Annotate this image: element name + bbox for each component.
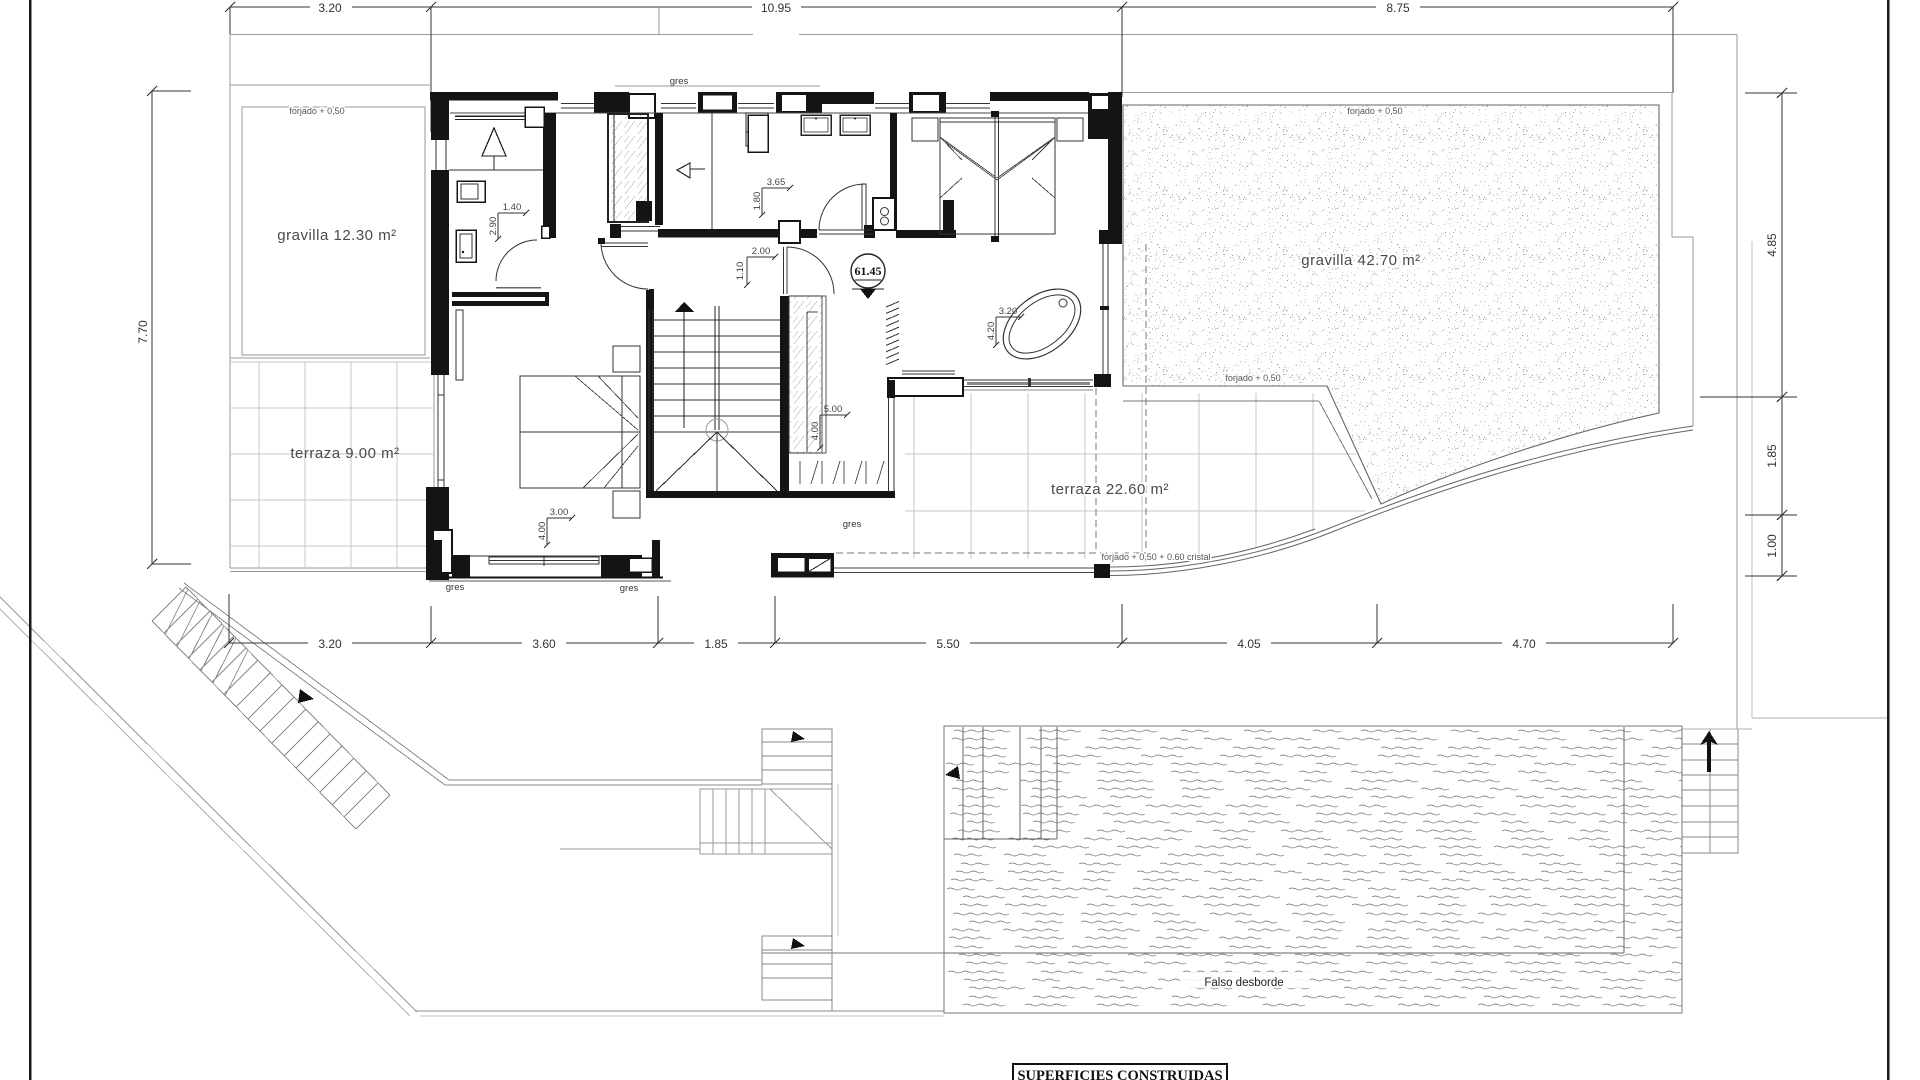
svg-text:gres: gres — [446, 582, 465, 593]
svg-text:3.20: 3.20 — [318, 637, 342, 651]
svg-text:gravilla 12.30 m²: gravilla 12.30 m² — [277, 227, 396, 244]
svg-text:4.20: 4.20 — [986, 322, 997, 341]
svg-text:3.20: 3.20 — [999, 306, 1018, 317]
svg-text:2.90: 2.90 — [488, 217, 499, 236]
svg-text:gres: gres — [670, 76, 689, 87]
svg-text:5.50: 5.50 — [936, 637, 960, 651]
svg-text:8.75: 8.75 — [1386, 1, 1410, 15]
svg-text:3.00: 3.00 — [550, 507, 569, 518]
svg-text:Falso desborde: Falso desborde — [1204, 977, 1283, 989]
svg-text:5.00: 5.00 — [824, 404, 843, 415]
svg-text:gres: gres — [620, 583, 639, 594]
svg-text:2.00: 2.00 — [752, 246, 771, 257]
svg-text:1.85: 1.85 — [704, 637, 728, 651]
svg-text:forjado + 0,50: forjado + 0,50 — [1225, 373, 1280, 383]
svg-text:4.70: 4.70 — [1512, 637, 1536, 651]
svg-text:1.10: 1.10 — [735, 262, 746, 281]
svg-text:terraza 9.00 m²: terraza 9.00 m² — [290, 445, 399, 462]
svg-text:forjado + 0,50: forjado + 0,50 — [289, 106, 344, 116]
svg-text:4.00: 4.00 — [810, 422, 821, 441]
svg-text:SUPERFICIES CONSTRUIDAS: SUPERFICIES CONSTRUIDAS — [1017, 1068, 1222, 1080]
svg-text:forjado + 0,50: forjado + 0,50 — [1347, 106, 1402, 116]
svg-text:4.05: 4.05 — [1237, 637, 1261, 651]
svg-text:terraza 22.60 m²: terraza 22.60 m² — [1051, 481, 1169, 498]
svg-text:10.95: 10.95 — [761, 1, 791, 15]
svg-text:3.65: 3.65 — [767, 177, 786, 188]
svg-text:4.00: 4.00 — [537, 522, 548, 541]
svg-text:1.40: 1.40 — [503, 202, 522, 213]
svg-text:gravilla 42.70 m²: gravilla 42.70 m² — [1301, 252, 1420, 269]
svg-text:forjado + 0,50 + 0.60 cristal: forjado + 0,50 + 0.60 cristal — [1101, 552, 1210, 562]
svg-text:61.45: 61.45 — [855, 264, 882, 278]
svg-text:1.85: 1.85 — [1765, 444, 1779, 468]
svg-text:4.85: 4.85 — [1765, 233, 1779, 257]
svg-text:3.60: 3.60 — [532, 637, 556, 651]
svg-text:gres: gres — [843, 519, 862, 530]
svg-text:1.80: 1.80 — [752, 192, 763, 211]
svg-text:1.00: 1.00 — [1765, 534, 1779, 558]
svg-text:3.20: 3.20 — [318, 1, 342, 15]
svg-text:7.70: 7.70 — [136, 320, 150, 344]
